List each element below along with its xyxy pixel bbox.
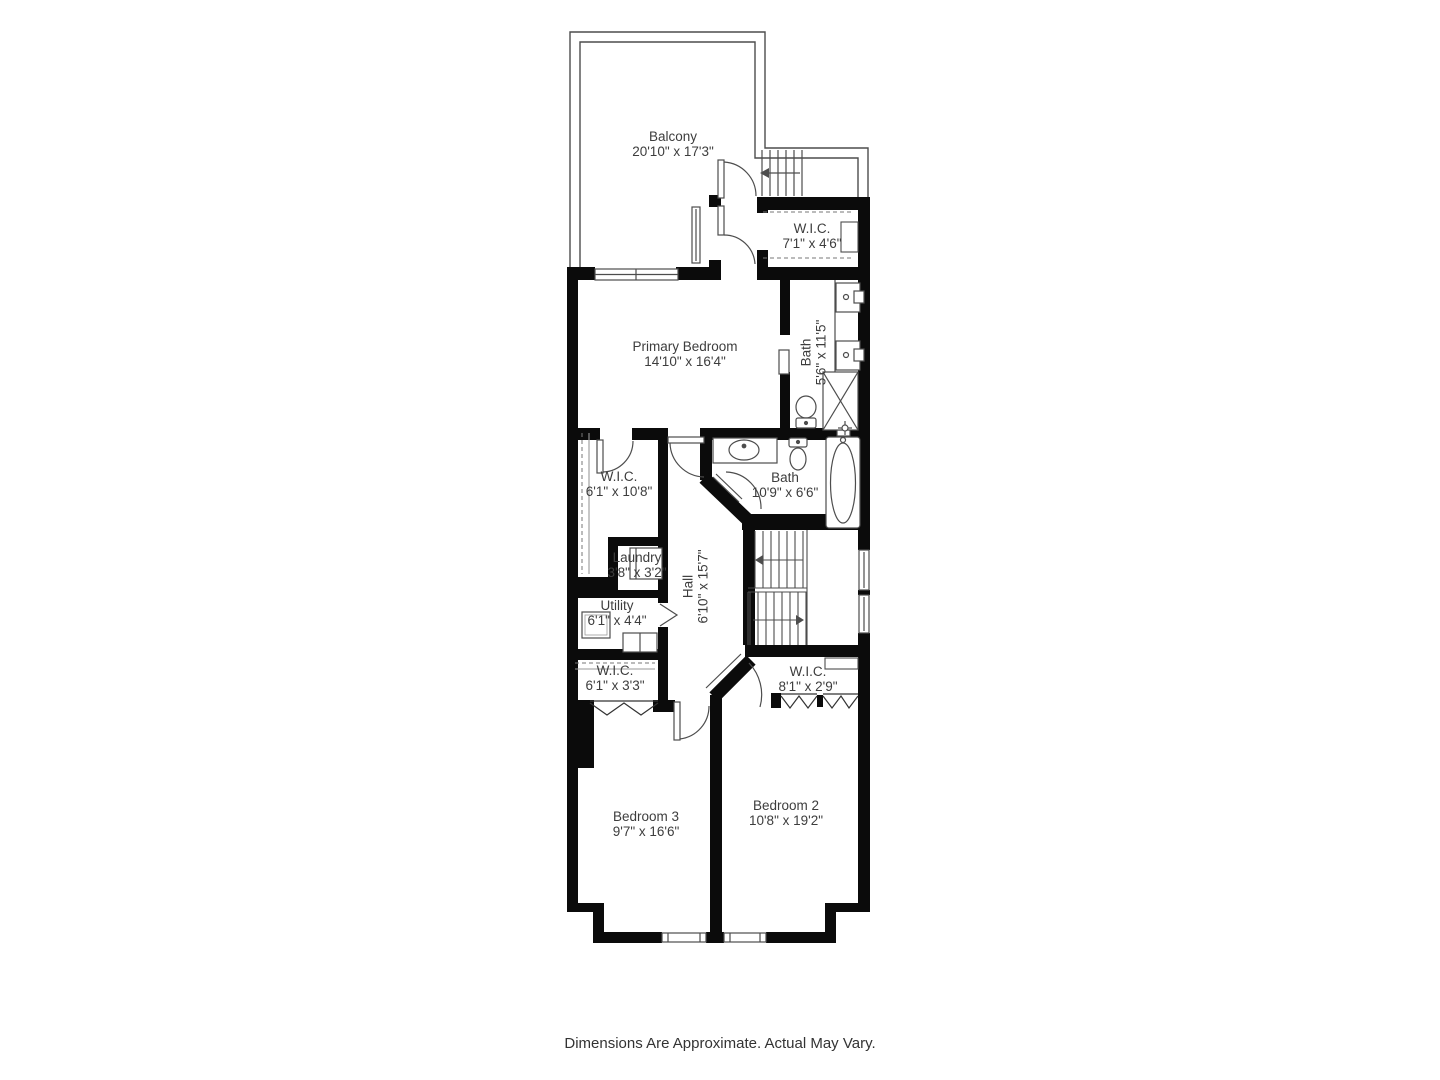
door-bedroom3 (674, 702, 709, 740)
room-dims: 6'1" x 10'8" (539, 485, 699, 500)
sink-icon (713, 438, 777, 463)
floor-plan: Balcony 20'10" x 17'3" W.I.C. 7'1" x 4'6… (0, 0, 1440, 1080)
room-name: Bath (800, 273, 815, 433)
toilet-icon (789, 438, 807, 470)
room-label-hall: Hall 6'10" x 15'7" (682, 507, 711, 667)
window-balcony-wall (595, 269, 678, 280)
room-dims: 9'7" x 16'6" (566, 825, 726, 840)
room-label-primary-bedroom: Primary Bedroom 14'10" x 16'4" (605, 340, 765, 369)
room-name: W.I.C. (535, 664, 695, 679)
bifold-wic-bedroom3 (590, 701, 658, 715)
stairs-up-arrow (755, 555, 763, 565)
sink-icon (836, 341, 864, 370)
room-label-wic-bedroom2: W.I.C. 8'1" x 2'9" (728, 665, 888, 694)
room-dims: 6'10" x 15'7" (696, 507, 711, 667)
bifold-wic-bedroom2-left (781, 694, 817, 708)
disclaimer-text: Dimensions Are Approximate. Actual May V… (0, 1035, 1440, 1052)
room-name: W.I.C. (732, 222, 892, 237)
room-dims: 6'1" x 4'4" (537, 614, 697, 629)
room-dims: 10'9" x 6'6" (705, 486, 865, 501)
room-name: W.I.C. (539, 470, 699, 485)
stairs-top (760, 150, 802, 196)
room-label-bedroom2: Bedroom 2 10'8" x 19'2" (706, 799, 866, 828)
door-primary-bath (779, 350, 789, 374)
window-stairs-1 (859, 550, 869, 590)
room-label-utility: Utility 6'1" x 4'4" (537, 599, 697, 628)
room-name: Balcony (593, 130, 753, 145)
room-name: Bath (705, 471, 865, 486)
room-name: W.I.C. (728, 665, 888, 680)
room-label-bath: Bath 10'9" x 6'6" (705, 471, 865, 500)
room-name: Hall (682, 507, 697, 667)
room-label-wic-left: W.I.C. 6'1" x 10'8" (539, 470, 699, 499)
room-label-bedroom3: Bedroom 3 9'7" x 16'6" (566, 810, 726, 839)
room-name: Utility (537, 599, 697, 614)
sink-icon (836, 283, 864, 312)
room-dims: 5'6" x 11'5" (814, 273, 829, 433)
window-glass-panel (692, 207, 700, 263)
window-stairs-2 (859, 595, 869, 633)
window-bedroom3 (662, 933, 706, 942)
room-label-wic-bedroom3: W.I.C. 6'1" x 3'3" (535, 664, 695, 693)
room-name: Bedroom 2 (706, 799, 866, 814)
stairs-main (748, 530, 807, 645)
room-dims: 7'1" x 4'6" (732, 237, 892, 252)
washer-dryer-icon (623, 633, 657, 652)
window-bedroom2 (724, 933, 766, 942)
room-label-wic-top: W.I.C. 7'1" x 4'6" (732, 222, 892, 251)
room-name: Primary Bedroom (605, 340, 765, 355)
door-balcony-upper (718, 160, 756, 198)
room-dims: 10'8" x 19'2" (706, 814, 866, 829)
room-dims: 14'10" x 16'4" (605, 355, 765, 370)
stairs-top-arrow (760, 168, 769, 178)
room-label-primary-bath: Bath 5'6" x 11'5" (800, 273, 829, 433)
bifold-wic-bedroom2-right (823, 694, 858, 708)
stairs-down-arrow (796, 615, 804, 625)
floor-plan-drawing (0, 0, 1440, 1080)
room-dims: 20'10" x 17'3" (593, 145, 753, 160)
room-dims: 8'1" x 2'9" (728, 680, 888, 695)
room-name: Bedroom 3 (566, 810, 726, 825)
room-dims: 6'1" x 3'3" (535, 679, 695, 694)
room-label-balcony: Balcony 20'10" x 17'3" (593, 130, 753, 159)
